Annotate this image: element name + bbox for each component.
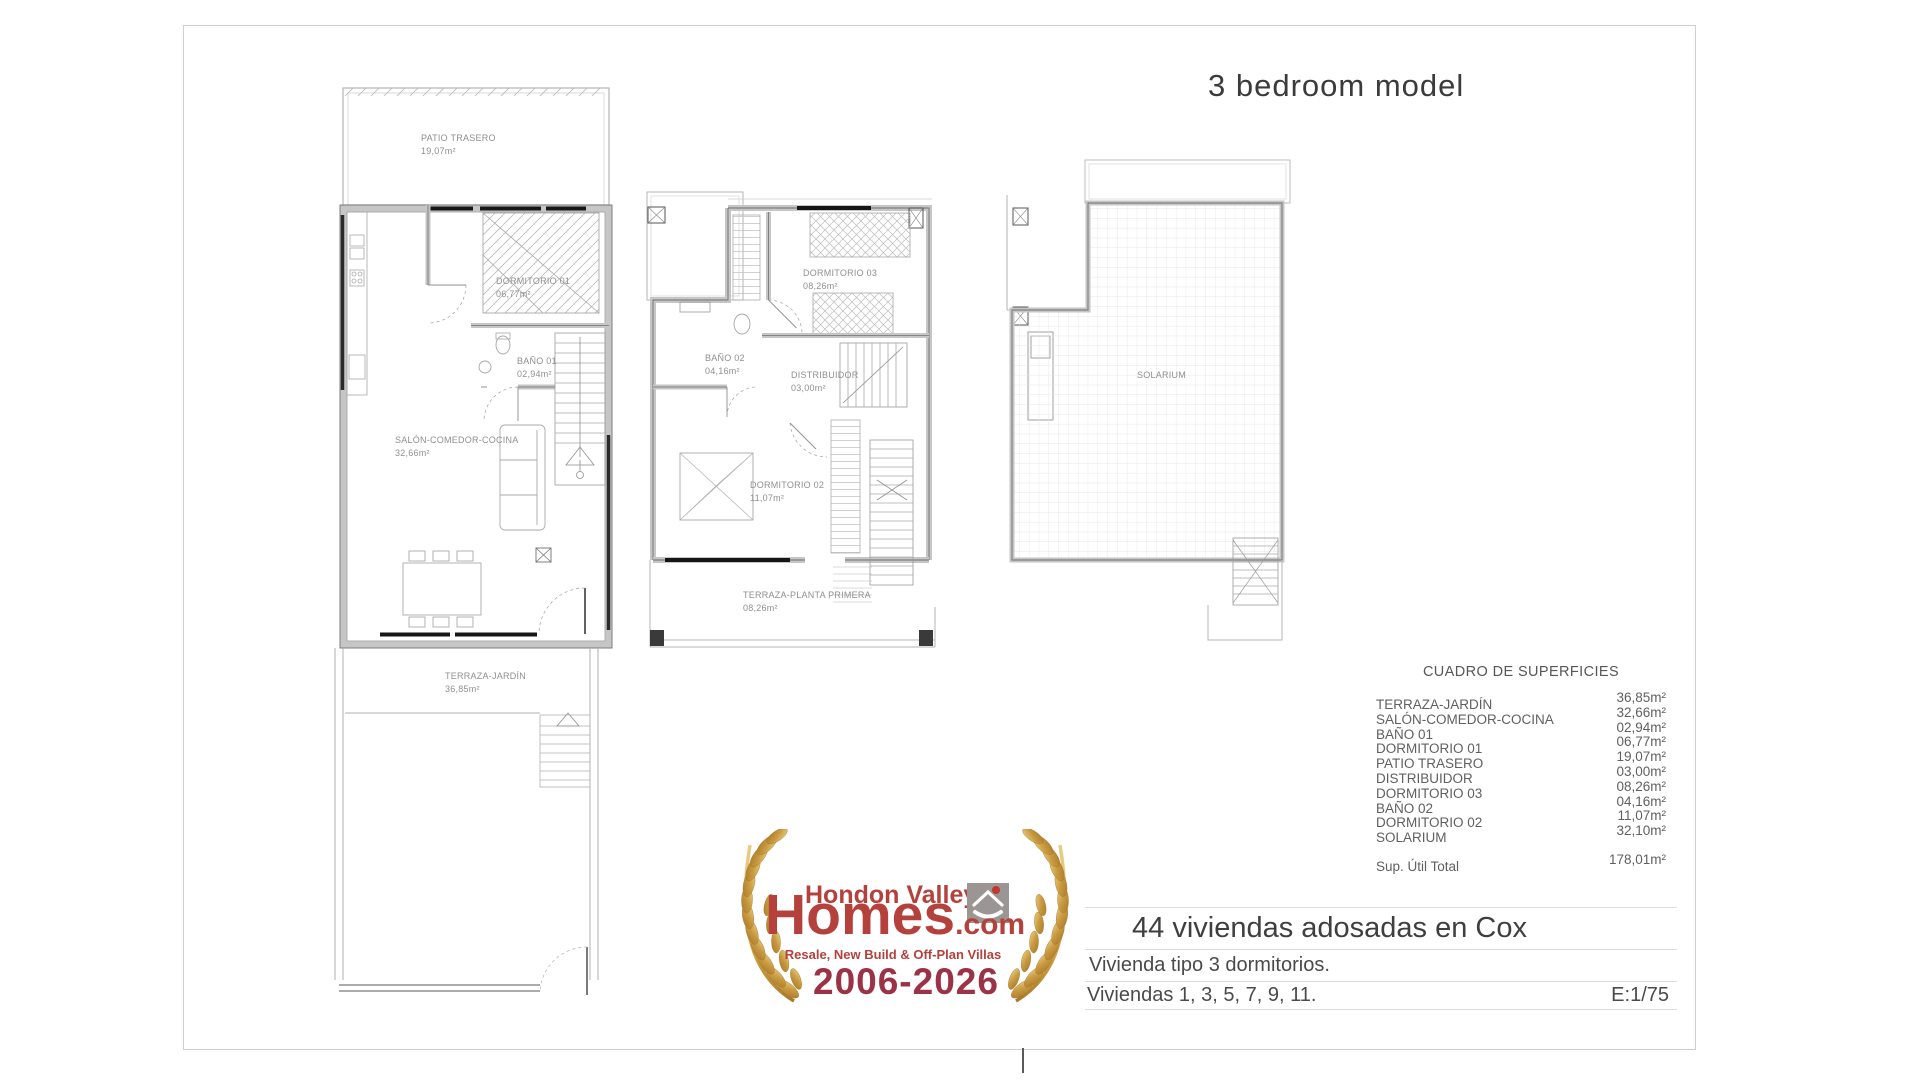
label-distrib: DISTRIBUIDOR xyxy=(791,370,859,380)
label-bano01: BAÑO 01 xyxy=(517,356,557,366)
dwelling-type: Vivienda tipo 3 dormitorios. xyxy=(1085,950,1677,982)
table-row: SOLARIUM32,10m² xyxy=(1376,830,1666,845)
area-patio: 19,07m² xyxy=(421,146,456,156)
page-title: 3 bedroom model xyxy=(1208,68,1464,104)
title-block: 44 viviendas adosadas en Cox Vivienda ti… xyxy=(1085,907,1677,1010)
plan-first-floor: DORMITORIO 03 08,26m² BAÑO 02 04,16m² DI… xyxy=(645,185,945,665)
toilet-icon xyxy=(734,314,750,334)
sheet-fold-tick xyxy=(1022,1048,1024,1073)
area-terraza-p1: 08,26m² xyxy=(743,603,778,613)
stairs-lower xyxy=(870,440,913,585)
label-terraza-p1: TERRAZA-PLANTA PRIMERA xyxy=(743,590,871,600)
brand-tagline: Resale, New Build & Off-Plan Villas xyxy=(782,947,1004,962)
entry-door xyxy=(539,588,585,634)
dwelling-numbers: Viviendas 1, 3, 5, 7, 9, 11. xyxy=(1087,984,1316,1007)
plan-roof-solarium: SOLARIUM xyxy=(1000,150,1300,665)
label-terraza: TERRAZA-JARDÍN xyxy=(445,671,526,681)
surface-table-title: CUADRO DE SUPERFICIES xyxy=(1376,664,1666,680)
hondon-valley-homes-logo: Hondon Valley Homes.com Resale, New Buil… xyxy=(720,825,1090,1020)
label-patio: PATIO TRASERO xyxy=(421,133,496,143)
area-dorm02: 11,07m² xyxy=(750,493,784,503)
bed-icon xyxy=(810,213,910,257)
wardrobe-icon xyxy=(733,215,760,300)
area-terraza: 36,85m² xyxy=(445,684,480,694)
floorplan-page: { "page": { "title": "3 bedroom model" }… xyxy=(0,0,1920,1080)
sink-icon xyxy=(680,302,710,312)
dining-table-icon xyxy=(403,551,481,627)
area-bano01: 02,94m² xyxy=(517,369,552,379)
surface-table: CUADRO DE SUPERFICIES TERRAZA-JARDÍN36,8… xyxy=(1376,664,1666,874)
dormitorio01-room xyxy=(428,205,609,326)
bed-icon xyxy=(813,293,893,337)
area-dorm01: 06,77m² xyxy=(496,289,531,299)
drawing-scale: E:1/75 xyxy=(1611,984,1677,1007)
brand-years: 2006-2026 xyxy=(813,961,999,1003)
dwelling-numbers-row: Viviendas 1, 3, 5, 7, 9, 11. E:1/75 xyxy=(1085,982,1677,1010)
area-dorm03: 08,26m² xyxy=(803,281,838,291)
label-bano02: BAÑO 02 xyxy=(705,353,745,363)
table-total-row: Sup. Útil Total178,01m² xyxy=(1376,859,1666,874)
area-distrib: 03,00m² xyxy=(791,383,826,393)
kitchen-counter xyxy=(347,212,367,395)
wardrobe-icon xyxy=(831,420,860,553)
label-dorm03: DORMITORIO 03 xyxy=(803,268,877,278)
ground-floor-stairs xyxy=(555,333,605,485)
label-solarium: SOLARIUM xyxy=(1137,370,1186,380)
sink-icon xyxy=(479,361,491,373)
brand-name-main: Homes.com xyxy=(765,887,1025,944)
area-salon: 32,66m² xyxy=(395,448,430,458)
label-dorm02: DORMITORIO 02 xyxy=(750,480,824,490)
garden-stairs xyxy=(540,713,590,787)
terraza-jardin-outline xyxy=(335,648,598,995)
terraza-p1-outline xyxy=(650,560,935,647)
plan-ground-floor: PATIO TRASERO 19,07m² DORMITORIO 01 06,7… xyxy=(333,85,623,1020)
patio-trasero-outline xyxy=(343,88,609,205)
project-title: 44 viviendas adosadas en Cox xyxy=(1085,908,1677,950)
roof-overhang xyxy=(1085,160,1290,203)
label-salon: SALÓN-COMEDOR-COCINA xyxy=(395,435,519,445)
area-bano02: 04,16m² xyxy=(705,366,740,376)
solarium-area xyxy=(1012,203,1282,560)
label-dorm01: DORMITORIO 01 xyxy=(496,276,570,286)
